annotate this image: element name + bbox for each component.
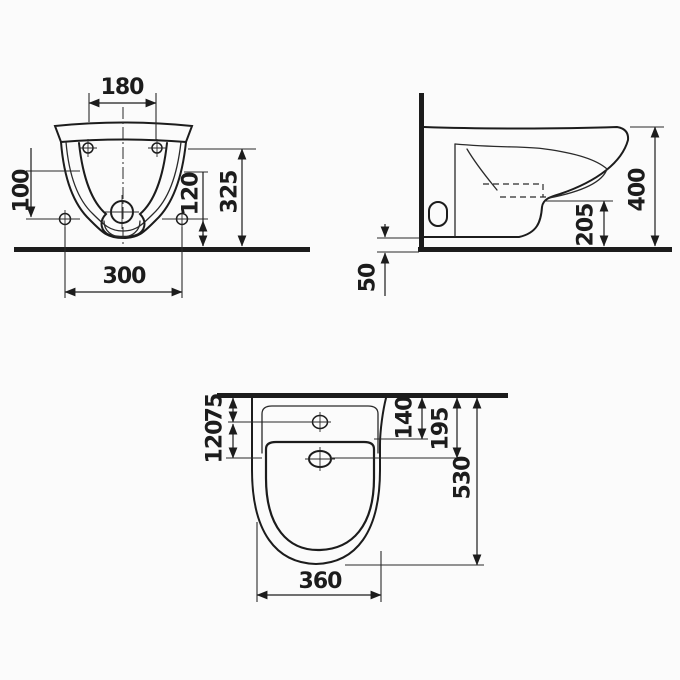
dim-plan-195: 195 <box>429 398 457 458</box>
side-view: 400 205 50 <box>356 93 672 296</box>
plan-wall-line <box>217 393 508 398</box>
front-drain-hole <box>105 195 139 229</box>
dim-label-120-front: 120 <box>179 172 204 216</box>
dim-side-205: 205 <box>545 201 613 246</box>
side-wall-line <box>419 93 424 252</box>
front-floor-line <box>14 247 310 252</box>
front-view: 180 100 120 325 300 <box>10 75 310 298</box>
dim-label-120-plan: 120 <box>203 420 228 464</box>
dim-label-140: 140 <box>393 396 418 440</box>
dim-label-400: 400 <box>626 168 651 212</box>
bidet-technical-drawing: 180 100 120 325 300 <box>0 0 680 680</box>
dim-label-205: 205 <box>574 204 599 247</box>
dim-label-100: 100 <box>10 169 35 213</box>
dim-label-50: 50 <box>356 263 381 292</box>
dim-front-120: 120 <box>162 172 208 246</box>
dim-side-50: 50 <box>356 224 385 296</box>
dim-plan-360: 360 <box>257 569 381 595</box>
dim-label-300: 300 <box>103 264 147 289</box>
dim-plan-140: 140 <box>393 396 422 440</box>
dim-label-325: 325 <box>218 171 243 214</box>
dim-label-530: 530 <box>451 456 476 500</box>
mounting-hole-right <box>148 139 166 157</box>
side-hidden-trap-lines <box>483 184 548 197</box>
side-floor-line <box>418 247 672 252</box>
plan-drain-hole <box>305 447 335 471</box>
dim-plan-120: 120 <box>203 420 233 464</box>
dim-label-360: 360 <box>299 569 343 594</box>
plan-view: 75 120 140 195 530 360 <box>203 393 508 602</box>
dim-plan-530: 530 <box>451 398 477 565</box>
side-rim-inner-line <box>455 144 607 198</box>
dim-label-75: 75 <box>203 394 228 423</box>
technical-drawing-canvas: 180 100 120 325 300 <box>0 0 680 680</box>
plan-faucet-hole <box>309 412 331 432</box>
dim-side-400: 400 <box>626 127 664 246</box>
dim-label-180: 180 <box>101 75 145 100</box>
dim-label-195: 195 <box>429 408 454 451</box>
plan-outer-outline <box>252 398 386 564</box>
mounting-hole-left <box>79 139 97 157</box>
side-bowl-back-curve <box>467 149 497 190</box>
side-outlet-slot <box>429 202 447 226</box>
